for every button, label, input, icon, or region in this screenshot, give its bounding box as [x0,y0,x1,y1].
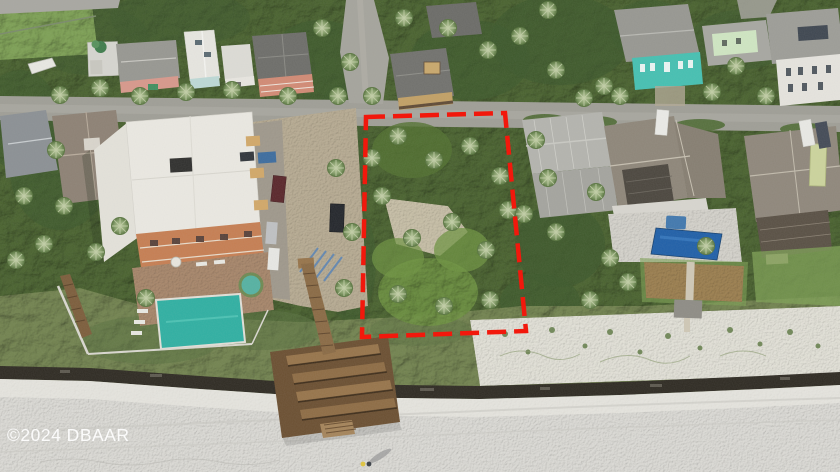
watermark: ©2024 DBAAR [7,425,129,445]
photo-grain [0,0,840,472]
aerial-photo: ©2024 DBAAR [0,0,840,472]
